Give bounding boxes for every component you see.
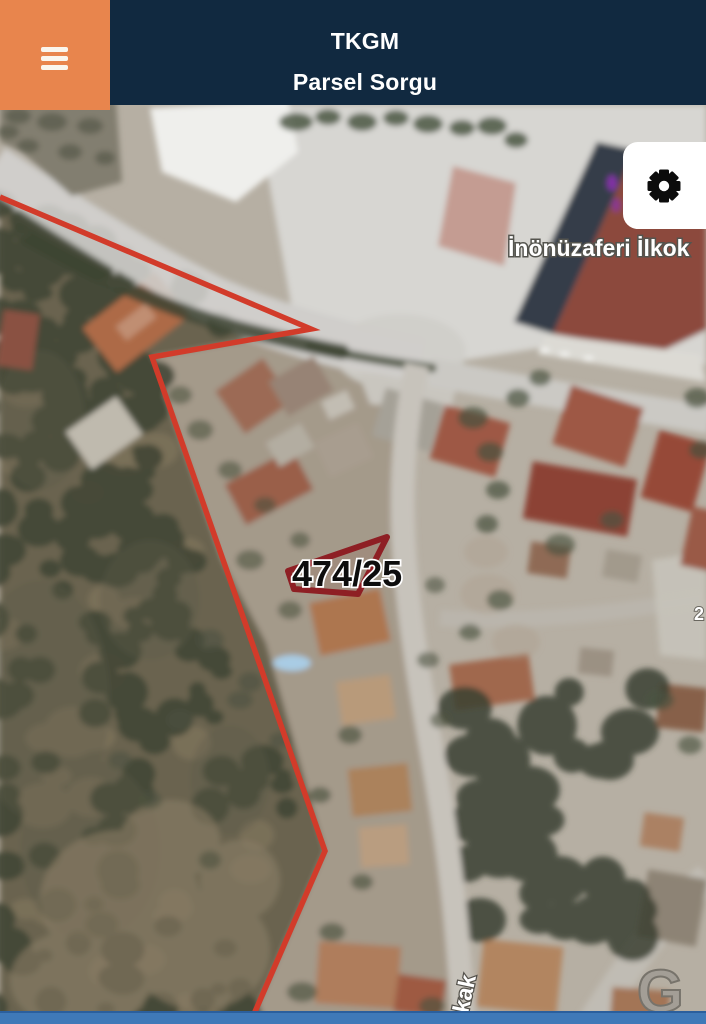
svg-text:İnönüzaferi İlkok: İnönüzaferi İlkok — [508, 235, 690, 261]
svg-text:2: 2 — [694, 604, 704, 624]
svg-text:474/25: 474/25 — [292, 553, 402, 594]
